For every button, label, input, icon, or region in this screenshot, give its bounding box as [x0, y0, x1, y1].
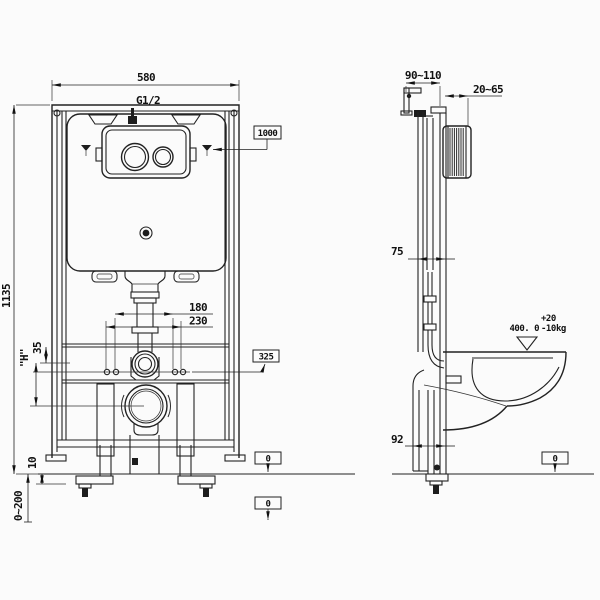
flush-plate-side: [443, 126, 471, 178]
dim-wall-finish-range: 20~65: [473, 83, 503, 96]
anchor-bolt-icon: [82, 488, 88, 497]
tank-bolt-icon: [143, 230, 150, 237]
load-arrow-icon: [517, 337, 537, 350]
wall-bracket: [401, 88, 426, 117]
side-view: 400. 0 +20 -10 kg 90~110 20~65 75: [391, 69, 594, 494]
dim-floor-adjust-range: 0~200: [12, 491, 25, 521]
dim-base-depth: 92: [391, 433, 403, 446]
flush-button-large: [122, 144, 149, 171]
dim-bracket-depth: 90~110: [405, 69, 441, 82]
water-inlet-fitting: [128, 116, 137, 124]
leg-side-profile: [413, 370, 506, 494]
label-outlet-height: 325: [259, 353, 274, 363]
label-floor-ref-lower: 0: [266, 500, 271, 510]
anchor-bolt-icon: [203, 488, 209, 497]
dim-bolt-spacing-outer: 230: [189, 315, 207, 328]
cistern-tank: [67, 108, 226, 282]
front-view: 580 G1/2 1135 1000 180 230: [0, 71, 355, 522]
cistern-frame-installation-drawing: 580 G1/2 1135 1000 180 230: [0, 0, 600, 600]
hatch-pattern: [450, 128, 463, 176]
flush-plate: [96, 126, 196, 178]
dim-drain-offset: 35: [31, 342, 44, 354]
dim-floor-clearance: 10: [26, 457, 39, 469]
flush-pipe-assembly: [125, 271, 165, 380]
load-annotation: 400. 0 +20 -10 kg: [509, 314, 565, 350]
anchor-bolt-icon: [433, 485, 439, 494]
dim-frame-depth: 75: [391, 245, 403, 258]
mounting-stud: [446, 376, 461, 383]
dim-variable-height: "H": [18, 349, 31, 367]
hanger-tab-icon: [89, 115, 117, 124]
leg-bolt-icon: [434, 465, 440, 471]
adjustable-legs: [57, 384, 234, 497]
dim-bolt-spacing-inner: 180: [189, 301, 207, 314]
dim-frame-width: 580: [137, 71, 155, 84]
label-floor-ref-upper: 0: [266, 455, 271, 465]
label-install-height: 1000: [258, 129, 278, 139]
dim-frame-height: 1135: [0, 284, 13, 308]
load-value: 400. 0: [509, 324, 539, 334]
label-floor-ref-side: 0: [553, 455, 558, 465]
drain-bend: [122, 385, 171, 474]
clip-icon: [168, 395, 171, 417]
toilet-bowl: [443, 352, 566, 430]
load-tolerance-plus: +20: [541, 314, 556, 324]
tank-side-profile: [423, 116, 444, 368]
label-inlet-thread: G1/2: [136, 94, 160, 107]
hanger-tab-icon: [172, 115, 200, 124]
technical-drawing-canvas: 580 G1/2 1135 1000 180 230: [0, 0, 600, 600]
bracket-screw-icon: [407, 94, 411, 98]
load-tolerance-minus: -10: [541, 324, 556, 334]
load-unit: kg: [556, 324, 566, 334]
